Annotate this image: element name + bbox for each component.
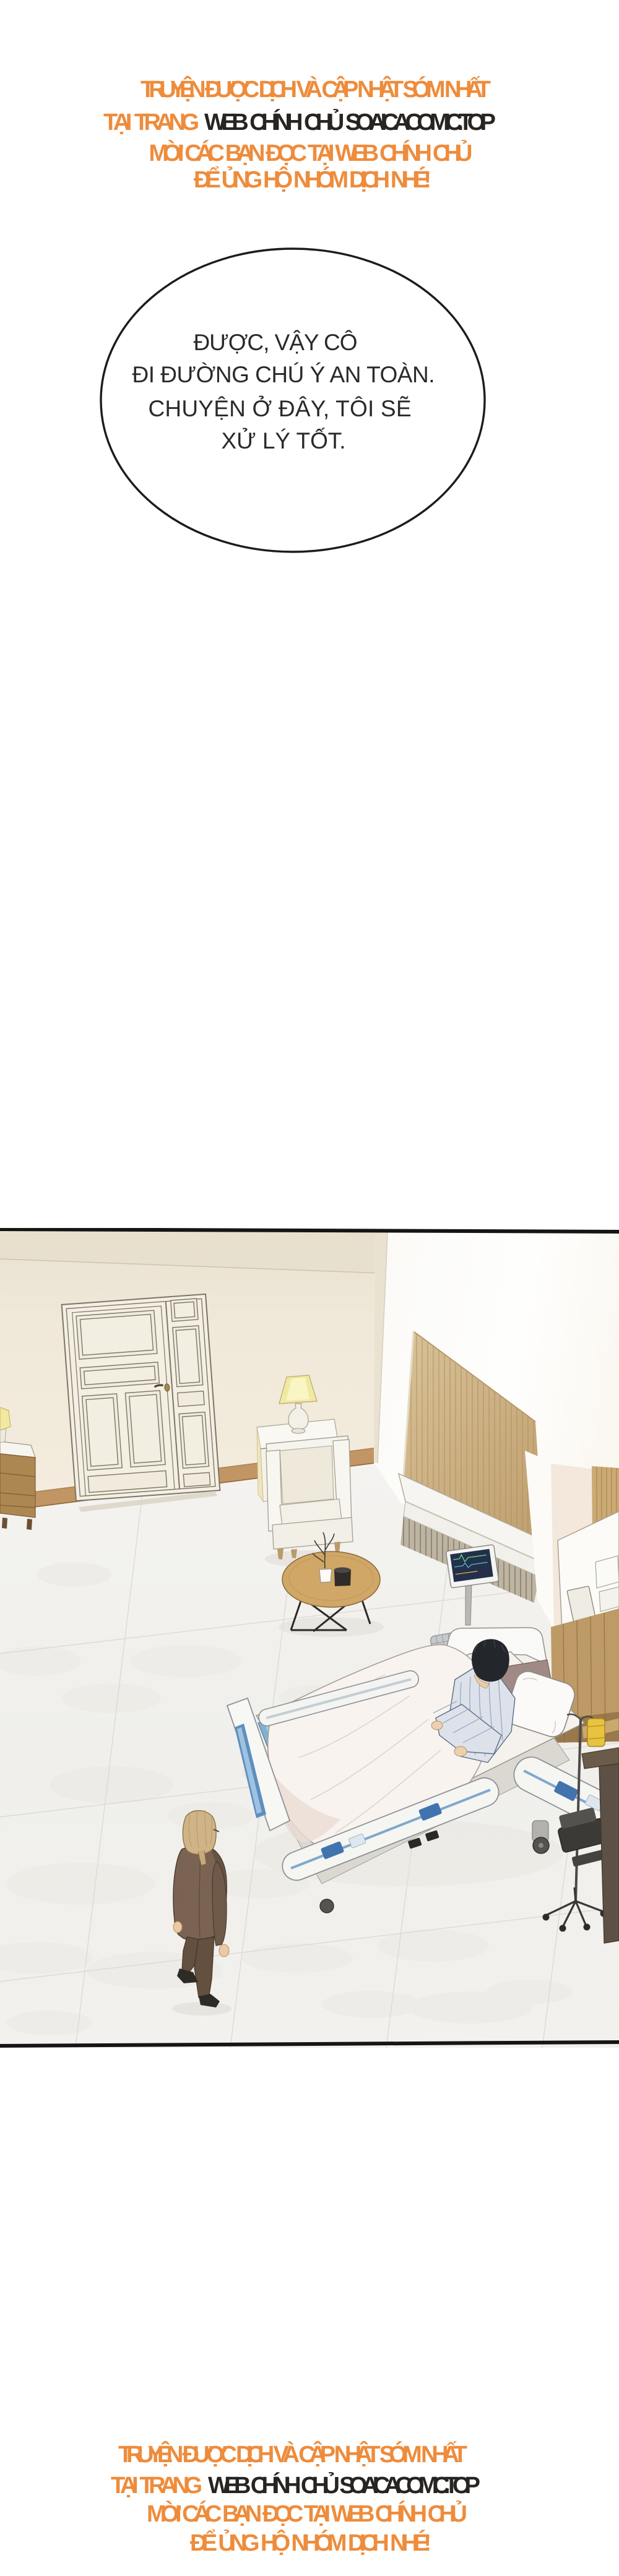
svg-text:CHUYỆN Ở ĐÂY, TÔI SẼ: CHUYỆN Ở ĐÂY, TÔI SẼ (149, 395, 412, 421)
svg-text:ĐỂ ỦNG HỘ NHÓM DỊCH NHÉ!: ĐỂ ỦNG HỘ NHÓM DỊCH NHÉ! (190, 2528, 431, 2556)
svg-text:TRUYỆN ĐƯỢC DỊCH VÀ CẬP NHẬT S: TRUYỆN ĐƯỢC DỊCH VÀ CẬP NHẬT SỚM NHẤT (141, 75, 491, 103)
svg-text:TRUYỆN ĐƯỢC DỊCH VÀ CẬP NHẬT S: TRUYỆN ĐƯỢC DỊCH VÀ CẬP NHẬT SỚM NHẤT (118, 2441, 467, 2468)
svg-text:MỜI CÁC BẠN ĐỌC TẠI WEB CHÍNH: MỜI CÁC BẠN ĐỌC TẠI WEB CHÍNH CHỦ (149, 139, 473, 166)
svg-text:TẠI TRANG: TẠI TRANG (103, 109, 199, 135)
svg-text:ĐƯỢC, VẬY CÔ: ĐƯỢC, VẬY CÔ (194, 330, 358, 355)
svg-text:ĐI ĐƯỜNG CHÚ Ý AN TOÀN.: ĐI ĐƯỜNG CHÚ Ý AN TOÀN. (132, 362, 435, 387)
svg-text:XỬ LÝ TỐT.: XỬ LÝ TỐT. (222, 427, 346, 453)
svg-text:ĐỂ ỦNG HỘ NHÓM DỊCH NHÉ!: ĐỂ ỦNG HỘ NHÓM DỊCH NHÉ! (194, 165, 431, 193)
svg-text:WEB CHÍNH CHỦ SOAICACOMIC.TOP: WEB CHÍNH CHỦ SOAICACOMIC.TOP (204, 108, 496, 135)
svg-text:MỜI CÁC BẠN ĐỌC TẠI WEB CHÍNH: MỜI CÁC BẠN ĐỌC TẠI WEB CHÍNH CHỦ (147, 2500, 467, 2527)
svg-text:TẠI TRANG: TẠI TRANG (111, 2473, 202, 2499)
svg-text:WEB CHÍNH CHỦ SOAICACOMIC.TOP: WEB CHÍNH CHỦ SOAICACOMIC.TOP (208, 2471, 480, 2499)
